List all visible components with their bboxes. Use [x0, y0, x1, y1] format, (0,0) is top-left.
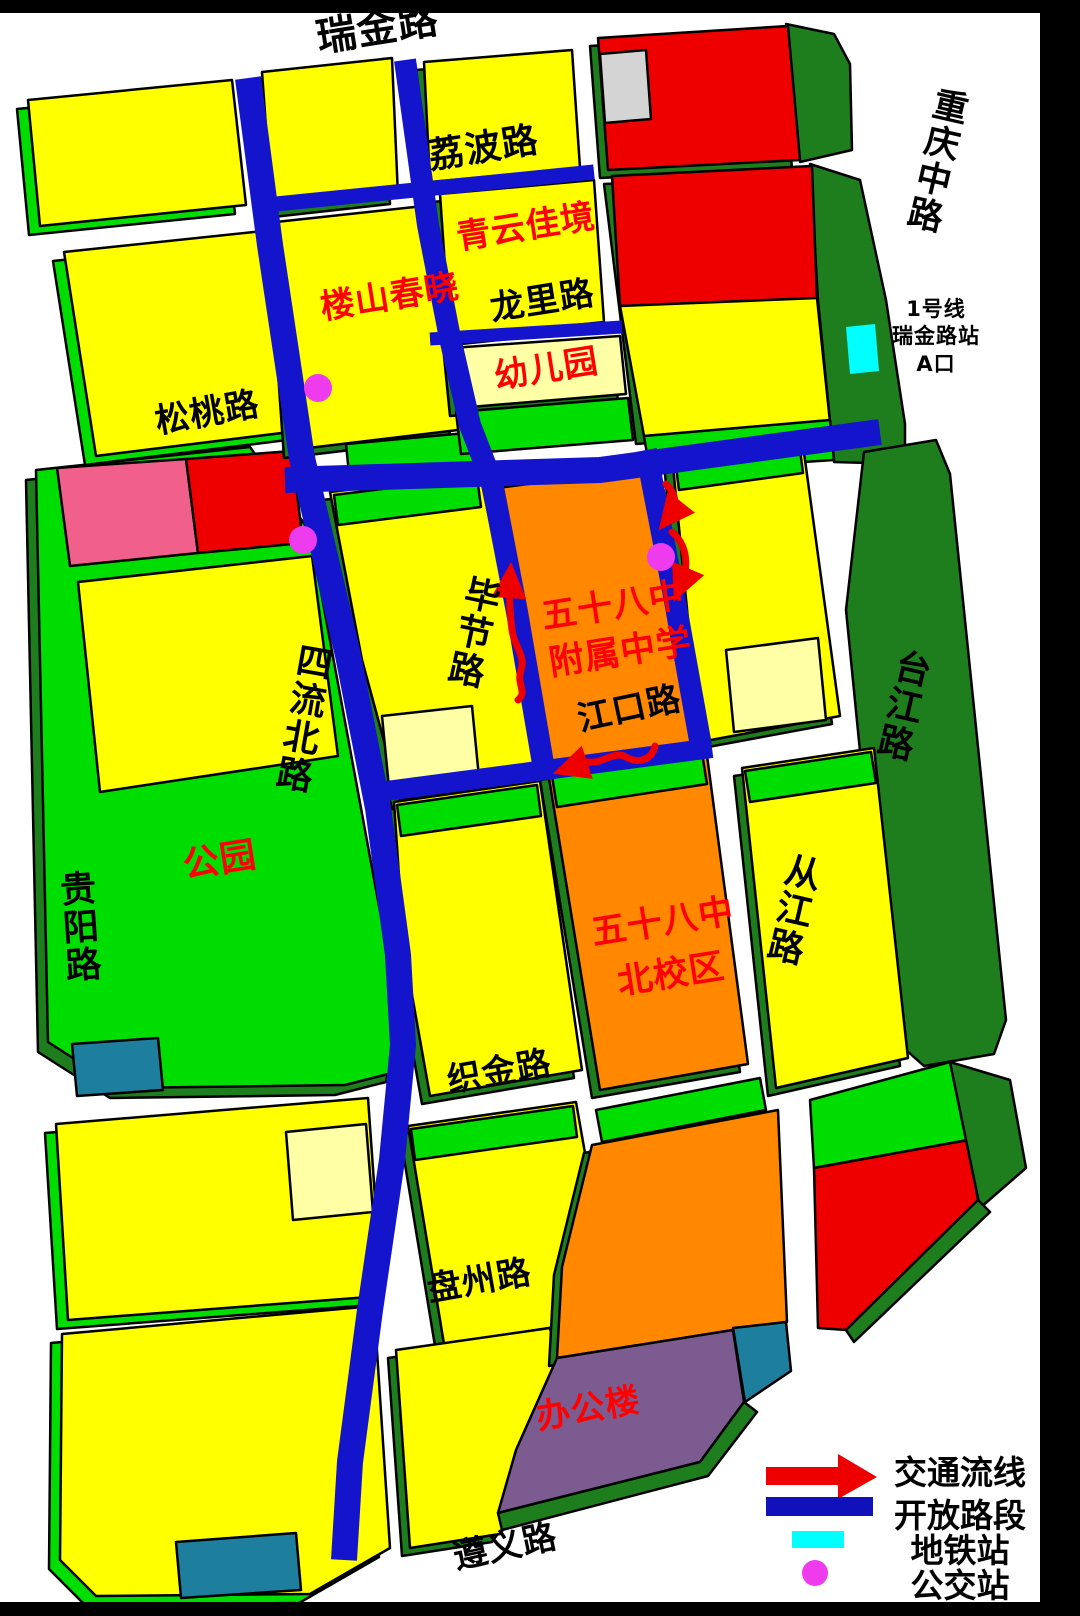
- road-label-guiyang: 贵阳路: [54, 869, 100, 985]
- park-pink-subblock: [57, 459, 198, 566]
- legend-label-traffic-flow: 交通流线: [880, 1446, 1040, 1494]
- cream-subblock: [726, 638, 826, 732]
- block-topleft-1: [17, 80, 246, 235]
- block-bottomleft-1: [45, 1098, 382, 1329]
- district-map: 瑞金路 荔波路 重庆中路 青云佳境 龙里路 楼山春晓 幼儿园 松桃路 1号线 瑞…: [0, 0, 1080, 1616]
- frame-top: [0, 0, 1080, 13]
- frame-right: [1040, 0, 1080, 1616]
- bus-station-icon: [802, 1560, 828, 1586]
- cream-subblock: [286, 1124, 373, 1220]
- open-road-icon: [766, 1497, 873, 1516]
- park-red-subblock: [186, 451, 303, 553]
- bus-stop-dot: [304, 374, 332, 402]
- block-red-north: [590, 24, 852, 178]
- frame-bottom: [0, 1602, 1080, 1616]
- metro-station-label: 1号线 瑞金路站 A口: [858, 296, 1014, 378]
- metro-station-icon: [792, 1531, 844, 1548]
- traffic-flow-arrow-icon: [766, 1454, 877, 1499]
- legend-label-bus-station: 公交站: [880, 1559, 1040, 1607]
- legend-swatches: [766, 1454, 877, 1586]
- gray-subblock: [600, 50, 651, 123]
- bus-stop-dot: [647, 543, 675, 571]
- block-bottomright: [810, 1062, 1026, 1342]
- park-teal-subblock: [72, 1038, 163, 1096]
- blocks-layer: [17, 24, 1026, 1605]
- teal-subblock: [176, 1533, 301, 1598]
- bus-stop-dot: [289, 526, 317, 554]
